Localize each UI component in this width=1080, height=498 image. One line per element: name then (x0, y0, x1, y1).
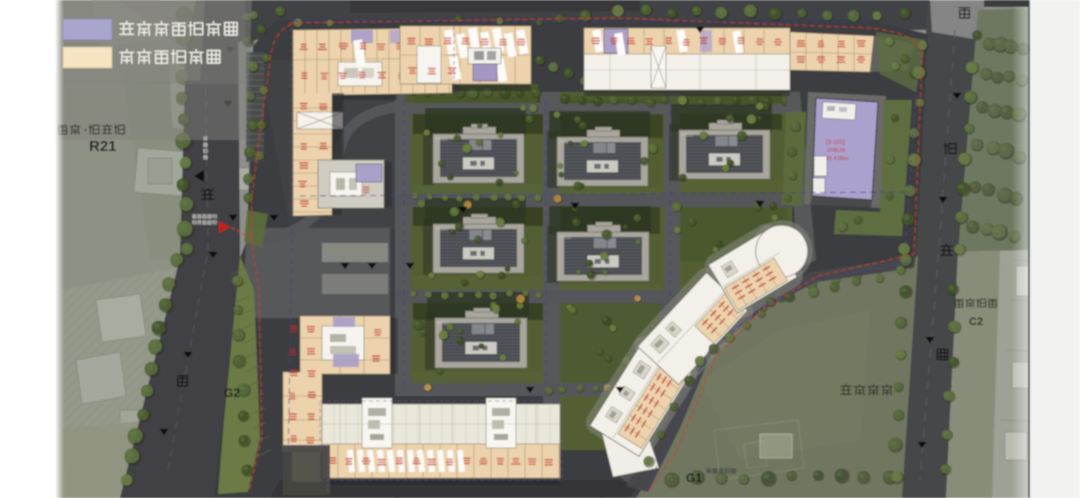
svg-text:[3-101]: [3-101] (826, 140, 845, 146)
svg-text:3748.06: 3748.06 (827, 148, 845, 154)
svg-text:##△△: ##△△ (435, 226, 448, 231)
svg-text:##△△: ##△△ (681, 132, 694, 137)
svg-text:R21: R21 (89, 138, 117, 155)
svg-text:##△△: ##△△ (437, 320, 450, 325)
svg-text:31 4.05m: 31 4.05m (826, 156, 849, 162)
svg-text:C2: C2 (969, 316, 983, 328)
svg-text:##△△: ##△△ (435, 136, 448, 141)
svg-text:##△△: ##△△ (559, 234, 572, 239)
svg-text:G1: G1 (686, 471, 702, 485)
svg-text:G2: G2 (224, 386, 240, 400)
